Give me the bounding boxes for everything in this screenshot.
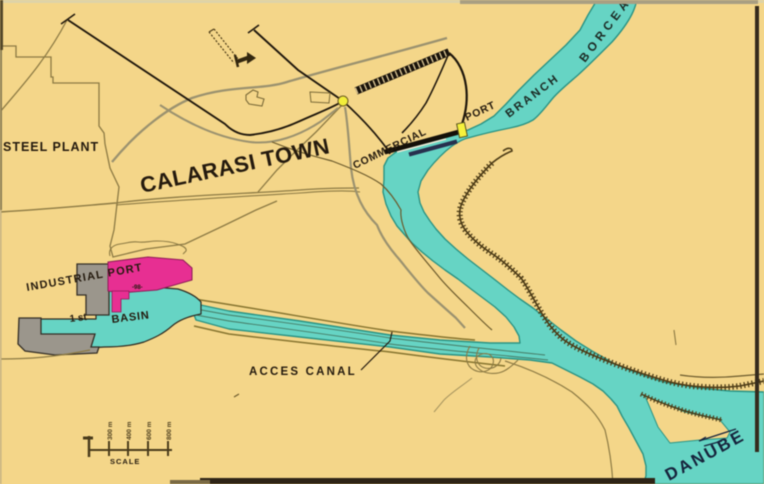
svg-text:300 m: 300 m (107, 421, 114, 440)
svg-text:STEEL PLANT: STEEL PLANT (3, 140, 99, 154)
svg-text:400 m: 400 m (126, 421, 133, 440)
svg-text:1 st: 1 st (69, 312, 88, 325)
svg-text:ACCES CANAL: ACCES CANAL (249, 366, 357, 378)
svg-text:-98-: -98- (132, 285, 143, 291)
svg-text:SCALE: SCALE (110, 457, 140, 466)
svg-text:600 m: 600 m (146, 421, 153, 440)
svg-text:800 m: 800 m (166, 421, 173, 440)
